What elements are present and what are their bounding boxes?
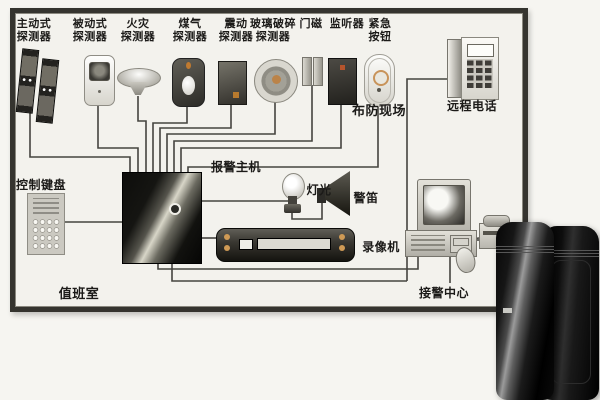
- security-system-diagram: 主动式 探测器 被动式 探测器 火灾 探测器 煤气 探测器 震动 探测器 玻璃破…: [0, 0, 600, 400]
- case-vents: [411, 235, 445, 251]
- label-vcr: 录像机: [358, 240, 404, 254]
- label-duty-room: 值班室: [55, 287, 103, 302]
- label-line: 煤气: [166, 17, 214, 30]
- button-circle: [373, 70, 389, 86]
- vcr-led-2: [224, 245, 230, 251]
- vibration-led: [233, 92, 239, 98]
- label-armed-site: 布防现场: [346, 104, 412, 119]
- button-dot: [377, 88, 381, 92]
- phone-body: [461, 37, 499, 100]
- wire-gas: [153, 105, 187, 173]
- beam-bar-1: [16, 48, 40, 113]
- gas-detector-icon: [172, 58, 205, 107]
- label-line: 探测器: [114, 30, 162, 43]
- gas-led: [186, 62, 191, 69]
- glassbreak-center: [272, 75, 281, 84]
- passive-detector-icon: [84, 55, 115, 106]
- host-led: [169, 203, 181, 215]
- keypad-keys: [32, 218, 60, 250]
- phone-keypad: [467, 59, 493, 88]
- label-listener: 监听器: [324, 17, 370, 30]
- vcr-front-panel: [257, 238, 331, 250]
- fire-detector-icon: [117, 68, 159, 98]
- label-light: 灯光: [304, 183, 334, 197]
- label-emergency-button: 紧急 按钮: [366, 17, 394, 43]
- phone-display: [467, 44, 494, 57]
- vcr-led-4: [339, 245, 345, 251]
- tower-ridge: [496, 246, 554, 253]
- pir-led: [98, 90, 101, 93]
- door-magnet-icon: [302, 57, 324, 86]
- label-active-detector: 主动式 探测器: [10, 17, 58, 43]
- label-siren: 警笛: [351, 191, 381, 205]
- control-keypad-icon: [27, 193, 65, 255]
- light-icon: [282, 173, 304, 214]
- magnet-bar-2: [313, 57, 323, 86]
- beam-tower-photo-front: [496, 222, 554, 400]
- keypad-display: [33, 198, 59, 214]
- magnet-bar-1: [302, 57, 312, 86]
- emergency-button-icon: [364, 54, 395, 107]
- label-line: 探测器: [66, 30, 114, 43]
- listener-icon: [328, 58, 357, 105]
- gas-sensor-window: [182, 76, 195, 95]
- tower-chip: [503, 308, 512, 313]
- glassbreak-detector-icon: [254, 59, 298, 103]
- vibration-detector-icon: [218, 61, 247, 105]
- label-line: 按钮: [366, 30, 394, 43]
- label-line: 主动式: [10, 17, 58, 30]
- beam-bar-2: [36, 58, 60, 123]
- case-drive-slot: [453, 238, 469, 246]
- label-alarm-center: 接警中心: [414, 286, 474, 300]
- label-line: 探测器: [244, 30, 302, 43]
- pir-window: [89, 62, 110, 81]
- vcr-cassette-slot: [239, 239, 253, 250]
- label-fire-detector: 火灾 探测器: [114, 17, 162, 43]
- vcr-led-3: [339, 234, 345, 240]
- monitor-screen: [423, 185, 465, 225]
- vcr-led-1: [224, 234, 230, 240]
- remote-phone-icon: [447, 37, 498, 98]
- label-gas-detector: 煤气 探测器: [166, 17, 214, 43]
- label-passive-detector: 被动式 探测器: [66, 17, 114, 43]
- listener-led: [340, 65, 345, 70]
- vcr-icon: [216, 228, 355, 262]
- label-control-keypad: 控制键盘: [13, 178, 69, 192]
- tower-panel: [551, 260, 591, 384]
- active-detector-icon: [18, 48, 64, 128]
- label-remote-phone: 远程电话: [441, 99, 503, 113]
- wire-fire: [138, 96, 146, 173]
- alarm-host-box: [122, 172, 202, 264]
- monitor-icon: [417, 179, 471, 233]
- lamp-base: [284, 204, 301, 213]
- smoke-detector-cone: [128, 82, 148, 95]
- wire-passive: [98, 105, 138, 173]
- label-alarm-host: 报警主机: [206, 160, 266, 174]
- label-line: 紧急: [366, 17, 394, 30]
- label-line: 监听器: [324, 17, 370, 30]
- label-line: 火灾: [114, 17, 162, 30]
- wire-host-phoneline: [172, 262, 407, 281]
- label-line: 被动式: [66, 17, 114, 30]
- phone-handset: [447, 39, 462, 98]
- label-line: 探测器: [166, 30, 214, 43]
- label-line: 探测器: [10, 30, 58, 43]
